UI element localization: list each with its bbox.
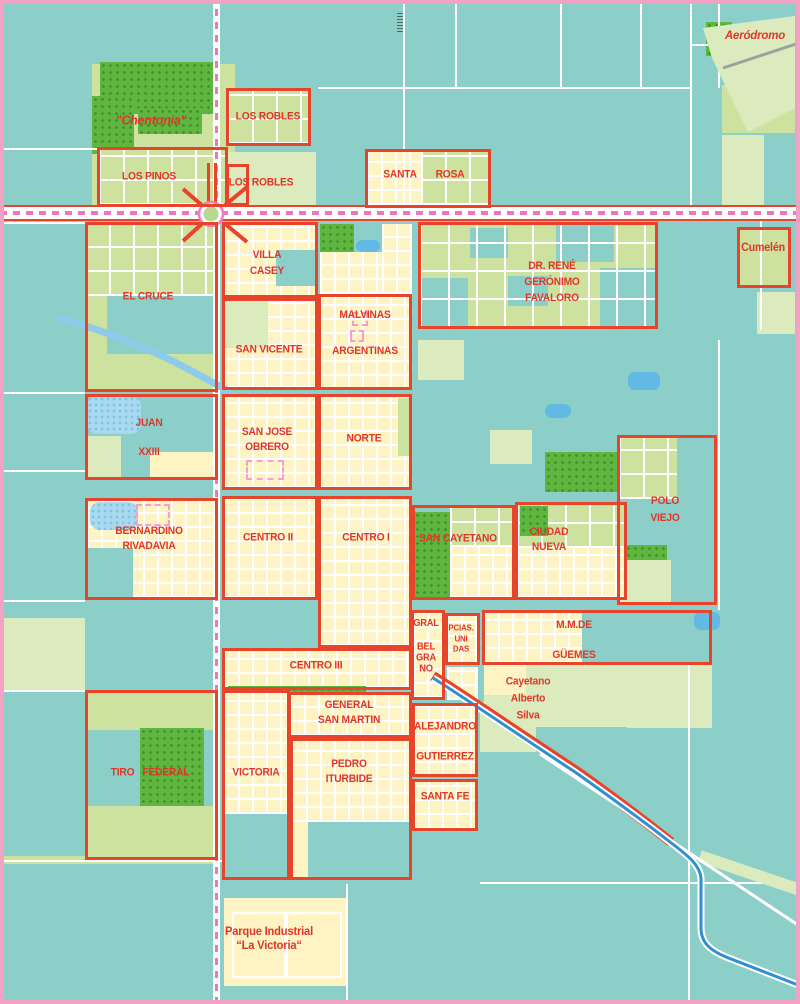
map-label-tiro-federal: TIRO FEDERAL	[111, 766, 190, 779]
map-label-parque-industrial-la-victoria: Parque Industrial “La Victoria“	[225, 924, 313, 952]
map-label-centro-i: CENTRO I	[342, 531, 389, 544]
map-label-centro-iii: CENTRO III	[290, 659, 343, 672]
map-label-aerodromo: Aeródromo	[725, 30, 785, 44]
map-label-victoria: VICTORIA	[232, 766, 279, 779]
map-label-san-cayetano: SAN CAYETANO	[419, 532, 497, 545]
map-label-pedro-iturbide: PEDRO ITURBIDE	[326, 757, 373, 787]
map-label-favaloro: DR. RENÉ GERÓNIMO FAVALORO	[524, 258, 579, 306]
map-label-santa-fe: SANTA FE	[421, 790, 470, 803]
map-label-san-jose-obrero: SAN JOSE OBRERO	[242, 425, 292, 455]
map-label-san-vicente: SAN VICENTE	[236, 343, 303, 356]
map-label-pcias-unidas: PCIAS. UNI DAS	[448, 622, 473, 654]
map-label-santa: SANTA	[383, 168, 417, 181]
map-label-mm-de-guemes: M.M.DE GÜEMES	[552, 610, 595, 670]
city-neighborhood-map: "Chentonia"LOS ROBLESLOS PINOSLOS ROBLES…	[0, 0, 800, 1004]
map-label-alejandro: ALEJANDRO	[414, 720, 476, 733]
map-label-centro-ii: CENTRO II	[243, 531, 293, 544]
map-label-norte: NORTE	[347, 432, 382, 445]
map-label-polo-viejo: POLO VIEJO	[650, 493, 679, 527]
map-label-juan-xxiii: JUAN XXIII	[135, 409, 162, 467]
map-label-ciudad-nueva: CIUDAD NUEVA	[530, 525, 569, 555]
map-label-los-pinos: LOS PINOS	[122, 170, 176, 183]
map-label-villa-casey: VILLA CASEY	[250, 247, 284, 279]
map-label-malvinas-argentinas: MALVINAS ARGENTINAS	[332, 297, 398, 369]
map-label-los-robles-south: LOS ROBLES	[229, 176, 294, 189]
map-label-general-san-martin: GENERAL SAN MARTIN	[318, 698, 380, 728]
district-labels-layer: "Chentonia"LOS ROBLESLOS PINOSLOS ROBLES…	[0, 0, 800, 1004]
map-label-rosa: ROSA	[436, 168, 465, 181]
map-label-belgrano: BEL GRA NO	[416, 642, 436, 675]
map-label-chentonia: "Chentonia"	[116, 114, 187, 129]
map-label-gral: GRAL	[413, 618, 439, 630]
map-label-los-robles-north: LOS ROBLES	[236, 110, 301, 123]
map-label-el-cruce: EL CRUCE	[123, 290, 174, 303]
map-label-cumelen: Cumelén	[741, 242, 785, 256]
map-label-bernardino-rivadavia: BERNARDINO RIVADAVIA	[115, 524, 182, 554]
map-label-cayetano-alberto-silva: Cayetano Alberto Silva	[506, 674, 551, 725]
map-label-gutierrez: GUTIERREZ	[416, 750, 473, 763]
